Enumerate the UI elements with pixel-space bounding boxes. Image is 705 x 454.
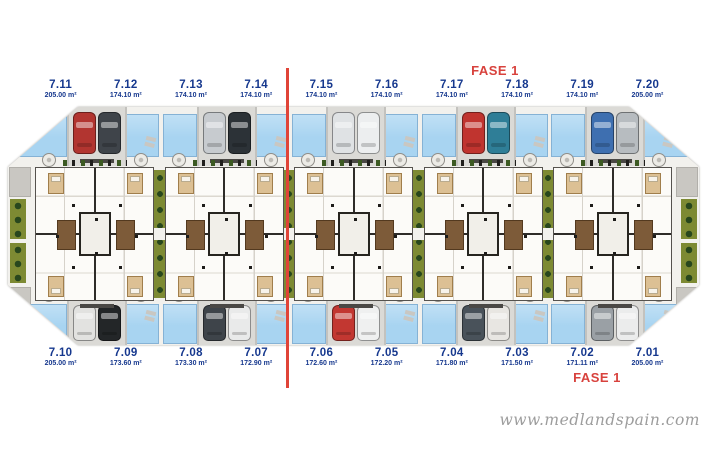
sidewalk-pad — [9, 287, 31, 317]
unit-number: 7.06 — [289, 347, 354, 360]
driveway — [326, 301, 386, 345]
pool — [422, 304, 456, 344]
pool — [255, 114, 289, 157]
unit-label: 7.04171.80 m² — [419, 347, 484, 373]
fixtures — [202, 204, 205, 207]
pool — [163, 114, 197, 157]
unit-area: 173.30 m² — [158, 360, 223, 368]
bed — [178, 173, 194, 194]
unit-label: 7.14174.10 m² — [224, 79, 289, 105]
housing-block — [30, 107, 160, 345]
unit-number: 7.04 — [419, 347, 484, 360]
driveway — [456, 107, 516, 166]
unit-label: 7.12174.10 m² — [93, 79, 158, 105]
car — [487, 112, 510, 154]
unit-area: 172.90 m² — [224, 360, 289, 368]
unit-number: 7.15 — [289, 79, 354, 92]
unit-label: 7.20205.00 m² — [615, 79, 680, 105]
garden-table — [301, 153, 315, 167]
sidewalk-pad — [676, 167, 698, 197]
unit-area: 174.10 m² — [354, 92, 419, 100]
building-floorplan — [35, 167, 154, 301]
fixtures — [331, 204, 334, 207]
dining-furniture — [504, 220, 523, 250]
garden-table — [134, 153, 148, 167]
garden-table — [42, 153, 56, 167]
bed — [307, 276, 323, 297]
car — [332, 305, 355, 341]
car — [487, 305, 510, 341]
dining-furniture — [57, 220, 76, 250]
bed — [386, 276, 402, 297]
unit-number: 7.14 — [224, 79, 289, 92]
unit-number: 7.17 — [419, 79, 484, 92]
unit-number: 7.03 — [484, 347, 549, 360]
unit-area: 173.60 m² — [93, 360, 158, 368]
car — [591, 305, 614, 341]
tree-strip — [10, 243, 26, 283]
building-floorplan — [424, 167, 543, 301]
bed — [178, 276, 194, 297]
bed — [48, 173, 64, 194]
bed — [127, 173, 143, 194]
unit-area: 205.00 m² — [28, 360, 93, 368]
pool — [125, 114, 159, 157]
driveway — [585, 107, 645, 166]
stair-core — [208, 212, 240, 256]
unit-area: 171.80 m² — [419, 360, 484, 368]
site-plan-wrapper — [8, 107, 699, 345]
unit-area: 174.10 m² — [289, 92, 354, 100]
unit-number: 7.08 — [158, 347, 223, 360]
bed — [257, 276, 273, 297]
unit-number: 7.16 — [354, 79, 419, 92]
garden-table — [523, 153, 537, 167]
car — [357, 112, 380, 154]
car — [203, 112, 226, 154]
sun-lounger — [664, 310, 675, 316]
pool — [551, 304, 585, 344]
housing-block — [419, 107, 549, 345]
unit-number: 7.19 — [550, 79, 615, 92]
unit-number: 7.11 — [28, 79, 93, 92]
bed — [437, 276, 453, 297]
driveway — [197, 301, 257, 345]
building-floorplan — [553, 167, 672, 301]
unit-label: 7.08173.30 m² — [158, 347, 223, 373]
unit-label: 7.10205.00 m² — [28, 347, 93, 373]
bed — [48, 276, 64, 297]
car — [73, 112, 96, 154]
unit-number: 7.09 — [93, 347, 158, 360]
garden-table — [264, 153, 278, 167]
stair-core — [467, 212, 499, 256]
fixtures — [461, 204, 464, 207]
pool — [12, 114, 67, 157]
car — [98, 112, 121, 154]
unit-label: 7.13174.10 m² — [158, 79, 223, 105]
driveway — [67, 301, 127, 345]
dining-furniture — [186, 220, 205, 250]
pool — [551, 114, 585, 157]
site-plan-page: 7.11205.00 m² 7.12174.10 m² 7.13174.10 m… — [0, 0, 705, 454]
unit-label: 7.06172.60 m² — [289, 347, 354, 373]
garden-table — [560, 153, 574, 167]
unit-label: 7.15174.10 m² — [289, 79, 354, 105]
sidewalk-pad — [9, 167, 31, 197]
sidewalk-pad — [676, 287, 698, 317]
landscaping-strip — [63, 160, 127, 166]
pool — [422, 114, 456, 157]
car — [332, 112, 355, 154]
unit-label: 7.05172.20 m² — [354, 347, 419, 373]
dining-furniture — [375, 220, 394, 250]
unit-label: 7.17174.10 m² — [419, 79, 484, 105]
unit-number: 7.01 — [615, 347, 680, 360]
unit-number: 7.10 — [28, 347, 93, 360]
car — [462, 305, 485, 341]
dining-furniture — [575, 220, 594, 250]
phase-divider-line — [286, 68, 289, 388]
bed — [437, 173, 453, 194]
stair-core — [597, 212, 629, 256]
driveway — [326, 107, 386, 166]
dining-furniture — [445, 220, 464, 250]
bed — [127, 276, 143, 297]
dining-furniture — [245, 220, 264, 250]
unit-number: 7.20 — [615, 79, 680, 92]
unit-label: 7.03171.50 m² — [484, 347, 549, 373]
pool — [163, 304, 197, 344]
dining-furniture — [634, 220, 653, 250]
unit-area: 172.60 m² — [289, 360, 354, 368]
pool — [514, 304, 548, 344]
car — [228, 112, 251, 154]
driveway — [585, 301, 645, 345]
unit-area: 205.00 m² — [615, 360, 680, 368]
unit-label: 7.01205.00 m² — [615, 347, 680, 373]
driveway — [67, 107, 127, 166]
garden-table — [393, 153, 407, 167]
unit-area: 171.50 m² — [484, 360, 549, 368]
unit-number: 7.18 — [484, 79, 549, 92]
car — [98, 305, 121, 341]
pool — [292, 304, 326, 344]
garden-table — [431, 153, 445, 167]
unit-number: 7.05 — [354, 347, 419, 360]
car — [462, 112, 485, 154]
unit-area: 205.00 m² — [615, 92, 680, 100]
unit-label: 7.11205.00 m² — [28, 79, 93, 105]
landscaping-strip — [322, 160, 386, 166]
tree-strip — [681, 243, 697, 283]
stair-core — [79, 212, 111, 256]
landscaping-strip — [452, 160, 516, 166]
unit-area: 171.11 m² — [550, 360, 615, 368]
unit-area: 174.10 m² — [419, 92, 484, 100]
garden-table — [652, 153, 666, 167]
phase-label-top: FASE 1 — [450, 63, 540, 78]
garden-table — [172, 153, 186, 167]
unit-label: 7.19174.10 m² — [550, 79, 615, 105]
housing-block — [160, 107, 290, 345]
bed — [566, 276, 582, 297]
unit-number: 7.12 — [93, 79, 158, 92]
unit-area: 174.10 m² — [158, 92, 223, 100]
unit-area: 174.10 m² — [224, 92, 289, 100]
pool — [384, 304, 418, 344]
car — [73, 305, 96, 341]
bed — [307, 173, 323, 194]
unit-area: 174.10 m² — [93, 92, 158, 100]
unit-label: 7.09173.60 m² — [93, 347, 158, 373]
housing-block — [548, 107, 678, 345]
pool — [255, 304, 289, 344]
watermark: www.medlandspain.com — [500, 411, 700, 429]
car — [616, 112, 639, 154]
unit-labels-top-row: 7.11205.00 m² 7.12174.10 m² 7.13174.10 m… — [28, 79, 680, 105]
unit-label: 7.18174.10 m² — [484, 79, 549, 105]
pool — [12, 304, 67, 344]
pool — [384, 114, 418, 157]
dining-furniture — [116, 220, 135, 250]
bed — [516, 276, 532, 297]
unit-label: 7.02171.11 m² — [550, 347, 615, 373]
car — [203, 305, 226, 341]
unit-labels-bottom-row: 7.10205.00 m² 7.09173.60 m² 7.08173.30 m… — [28, 347, 680, 373]
site-plan — [8, 107, 699, 345]
bed — [386, 173, 402, 194]
bed — [645, 276, 661, 297]
bed — [566, 173, 582, 194]
tree-strip — [10, 199, 26, 239]
stair-core — [338, 212, 370, 256]
landscaping-strip — [581, 160, 645, 166]
car — [357, 305, 380, 341]
unit-label: 7.16174.10 m² — [354, 79, 419, 105]
pool — [292, 114, 326, 157]
pool — [643, 114, 698, 157]
driveway — [197, 107, 257, 166]
building-floorplan — [294, 167, 413, 301]
car — [616, 305, 639, 341]
pool — [125, 304, 159, 344]
fixtures — [590, 204, 593, 207]
pool — [643, 304, 698, 344]
car — [591, 112, 614, 154]
tree-strip — [681, 199, 697, 239]
driveway — [456, 301, 516, 345]
unit-area: 174.10 m² — [550, 92, 615, 100]
bed — [516, 173, 532, 194]
building-floorplan — [165, 167, 284, 301]
unit-area: 174.10 m² — [484, 92, 549, 100]
unit-area: 172.20 m² — [354, 360, 419, 368]
dining-furniture — [316, 220, 335, 250]
unit-area: 205.00 m² — [28, 92, 93, 100]
pool — [514, 114, 548, 157]
bed — [645, 173, 661, 194]
unit-number: 7.07 — [224, 347, 289, 360]
bed — [257, 173, 273, 194]
unit-number: 7.13 — [158, 79, 223, 92]
housing-block — [289, 107, 419, 345]
fixtures — [72, 204, 75, 207]
landscaping-strip — [193, 160, 257, 166]
car — [228, 305, 251, 341]
unit-number: 7.02 — [550, 347, 615, 360]
unit-label: 7.07172.90 m² — [224, 347, 289, 373]
